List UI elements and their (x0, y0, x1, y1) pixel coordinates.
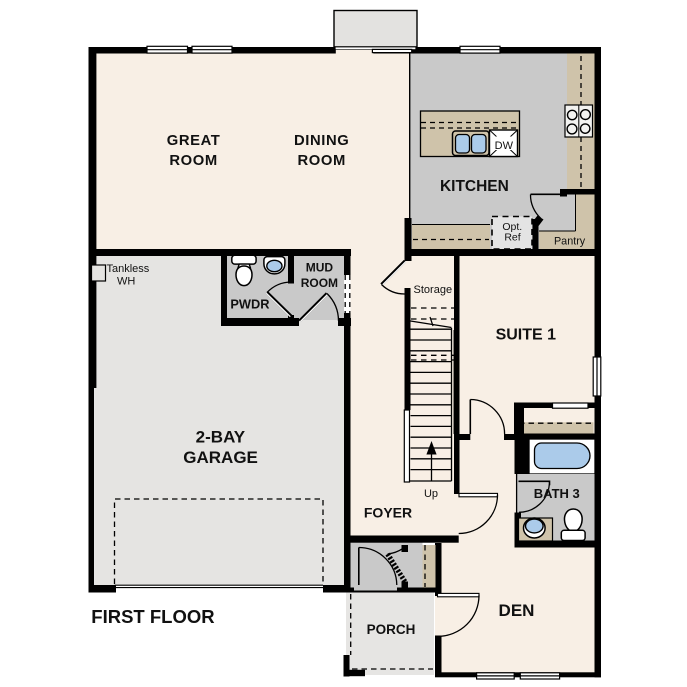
svg-text:ROOM: ROOM (297, 153, 345, 169)
svg-text:PORCH: PORCH (367, 622, 416, 637)
svg-text:BATH 3: BATH 3 (534, 486, 580, 501)
svg-text:Pantry: Pantry (554, 236, 586, 248)
svg-text:Storage: Storage (414, 284, 453, 296)
svg-text:WH: WH (117, 276, 135, 288)
svg-text:PWDR: PWDR (230, 297, 269, 312)
svg-text:Tankless: Tankless (107, 263, 150, 275)
svg-text:2-BAY: 2-BAY (196, 428, 246, 447)
svg-text:DW: DW (495, 140, 514, 152)
svg-text:FOYER: FOYER (364, 505, 412, 521)
svg-text:Up: Up (424, 488, 438, 500)
svg-text:Ref: Ref (504, 232, 520, 244)
svg-text:DEN: DEN (499, 601, 535, 620)
svg-text:SUITE 1: SUITE 1 (496, 327, 557, 344)
svg-text:GREAT: GREAT (167, 133, 221, 149)
svg-text:KITCHEN: KITCHEN (440, 178, 509, 195)
svg-text:FIRST FLOOR: FIRST FLOOR (91, 606, 214, 627)
svg-text:MUD: MUD (306, 260, 334, 274)
svg-text:ROOM: ROOM (301, 276, 338, 290)
svg-text:ROOM: ROOM (169, 153, 217, 169)
svg-text:GARAGE: GARAGE (183, 448, 258, 467)
svg-text:DINING: DINING (294, 133, 349, 149)
